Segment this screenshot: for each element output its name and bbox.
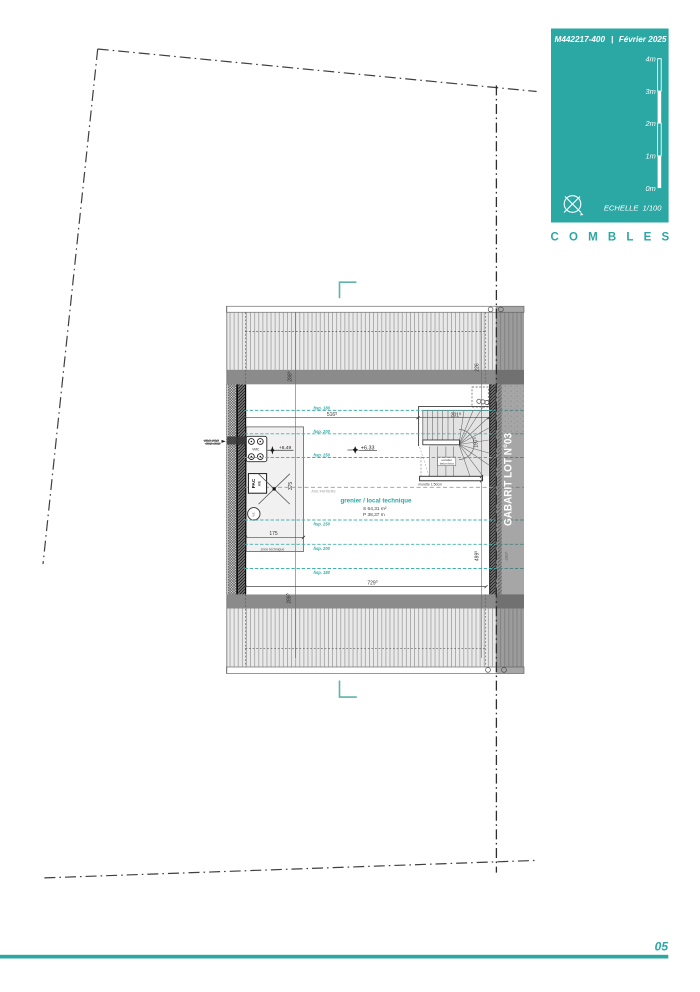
svg-text:hsp. 200: hsp. 200: [314, 546, 331, 551]
svg-text:226: 226: [474, 363, 480, 372]
svg-text:+6.49: +6.49: [279, 445, 291, 451]
svg-text:zone technique: zone technique: [260, 547, 285, 551]
svg-text:VMC: VMC: [252, 448, 260, 452]
svg-text:GABARIT LOT N°03: GABARIT LOT N°03: [503, 433, 515, 526]
svg-text:ECHELLE1/100: ECHELLE1/100: [604, 204, 662, 213]
svg-text:A/E: A/E: [258, 480, 262, 486]
svg-text:hsp. 250: hsp. 250: [314, 453, 331, 458]
svg-text:M442217-400: M442217-400: [555, 35, 606, 44]
svg-text:P 38,37 m: P 38,37 m: [363, 512, 385, 518]
svg-text:grenier / local technique: grenier / local technique: [341, 498, 412, 505]
svg-text:hsp. 180: hsp. 180: [314, 406, 331, 411]
svg-text:béton brut: béton brut: [440, 462, 454, 466]
svg-text:hsp. 180: hsp. 180: [314, 570, 331, 575]
svg-text:COMBLES: COMBLES: [551, 232, 680, 244]
svg-text:175: 175: [269, 531, 278, 537]
svg-text:2m: 2m: [645, 119, 656, 128]
svg-text:499⁵: 499⁵: [504, 551, 509, 560]
svg-text:|: |: [611, 35, 613, 44]
svg-text:3m: 3m: [646, 87, 656, 96]
svg-text:murette 1:50cm: murette 1:50cm: [418, 483, 442, 487]
svg-text:0m: 0m: [646, 184, 656, 193]
svg-text:AXE FAITIERS: AXE FAITIERS: [311, 489, 336, 493]
svg-text:S 64,31 m²: S 64,31 m²: [363, 506, 387, 512]
svg-text:05: 05: [655, 940, 669, 954]
svg-text:375: 375: [288, 482, 294, 491]
svg-text:Février 2025: Février 2025: [619, 35, 667, 44]
svg-text:hsp. 200: hsp. 200: [314, 429, 331, 434]
svg-text:1m: 1m: [646, 152, 656, 161]
svg-text:4m: 4m: [646, 55, 656, 64]
svg-text:V.E.: V.E.: [252, 511, 256, 516]
svg-text:PAC: PAC: [251, 478, 256, 488]
svg-text:hsp. 250: hsp. 250: [314, 522, 331, 527]
